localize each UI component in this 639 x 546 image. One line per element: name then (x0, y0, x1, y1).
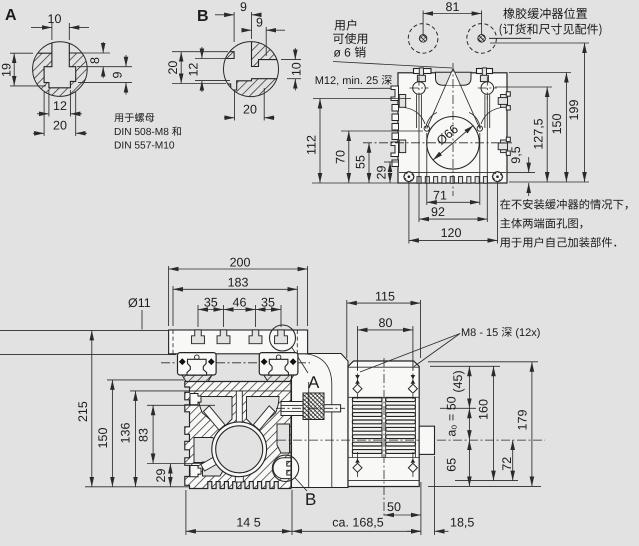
svg-text:112: 112 (305, 135, 319, 155)
svg-text:ø 6: ø 6 (334, 46, 352, 60)
svg-text:19: 19 (0, 63, 14, 77)
svg-text:72: 72 (500, 457, 514, 471)
svg-text:Ø11: Ø11 (128, 296, 151, 310)
svg-text:10: 10 (48, 12, 62, 26)
svg-text:20: 20 (166, 61, 180, 75)
svg-text:200: 200 (230, 256, 251, 270)
svg-text:B: B (305, 490, 316, 509)
svg-text:20: 20 (53, 119, 67, 133)
svg-text:9: 9 (256, 16, 263, 30)
svg-text:199: 199 (567, 100, 581, 121)
svg-text:80: 80 (379, 316, 393, 330)
svg-text:115: 115 (375, 290, 395, 304)
svg-text:120: 120 (441, 226, 462, 240)
svg-text:29: 29 (375, 166, 389, 180)
svg-text:50: 50 (387, 500, 401, 514)
svg-text:81: 81 (446, 0, 460, 14)
svg-text:18,5: 18,5 (450, 516, 474, 530)
svg-text:71: 71 (433, 189, 447, 203)
svg-text:M12, min. 25: M12, min. 25 (315, 75, 379, 87)
svg-text:DIN 508-M8: DIN 508-M8 (114, 127, 169, 138)
svg-text:9: 9 (240, 0, 247, 14)
svg-text:215: 215 (76, 401, 90, 422)
svg-text:10: 10 (290, 62, 304, 76)
svg-text:9: 9 (111, 71, 125, 78)
svg-text:150: 150 (96, 428, 110, 449)
svg-text:20: 20 (243, 103, 257, 117)
svg-text:14 5: 14 5 (236, 516, 260, 530)
svg-text:127,5: 127,5 (532, 118, 546, 149)
svg-text:183: 183 (228, 276, 249, 290)
svg-text:A: A (308, 373, 320, 392)
svg-text:(12x): (12x) (515, 327, 540, 339)
svg-text:136: 136 (119, 423, 133, 444)
svg-text:55: 55 (354, 155, 368, 169)
svg-text:83: 83 (137, 428, 151, 442)
svg-text:a₀ = 50: a₀ = 50 (445, 396, 459, 436)
svg-text:35: 35 (204, 296, 218, 310)
svg-text:(45): (45) (451, 370, 465, 392)
svg-text:A: A (5, 7, 17, 24)
svg-text:M8 - 15: M8 - 15 (461, 327, 498, 339)
svg-text:70: 70 (333, 150, 347, 164)
svg-text:DIN 557-M10: DIN 557-M10 (114, 141, 175, 152)
svg-text:46: 46 (233, 296, 247, 310)
svg-text:179: 179 (516, 410, 530, 431)
svg-text:65: 65 (445, 458, 459, 472)
svg-text:12: 12 (187, 63, 201, 77)
svg-text:9,5: 9,5 (509, 146, 523, 163)
svg-text:B: B (197, 8, 209, 25)
svg-text:29: 29 (154, 469, 168, 483)
svg-text:92: 92 (431, 205, 445, 219)
svg-text:35: 35 (261, 296, 275, 310)
svg-text:150: 150 (550, 114, 564, 135)
svg-text:ca. 168,5: ca. 168,5 (332, 516, 383, 530)
svg-text:12: 12 (53, 99, 67, 113)
svg-text:8: 8 (88, 57, 102, 64)
svg-text:160: 160 (477, 399, 491, 420)
